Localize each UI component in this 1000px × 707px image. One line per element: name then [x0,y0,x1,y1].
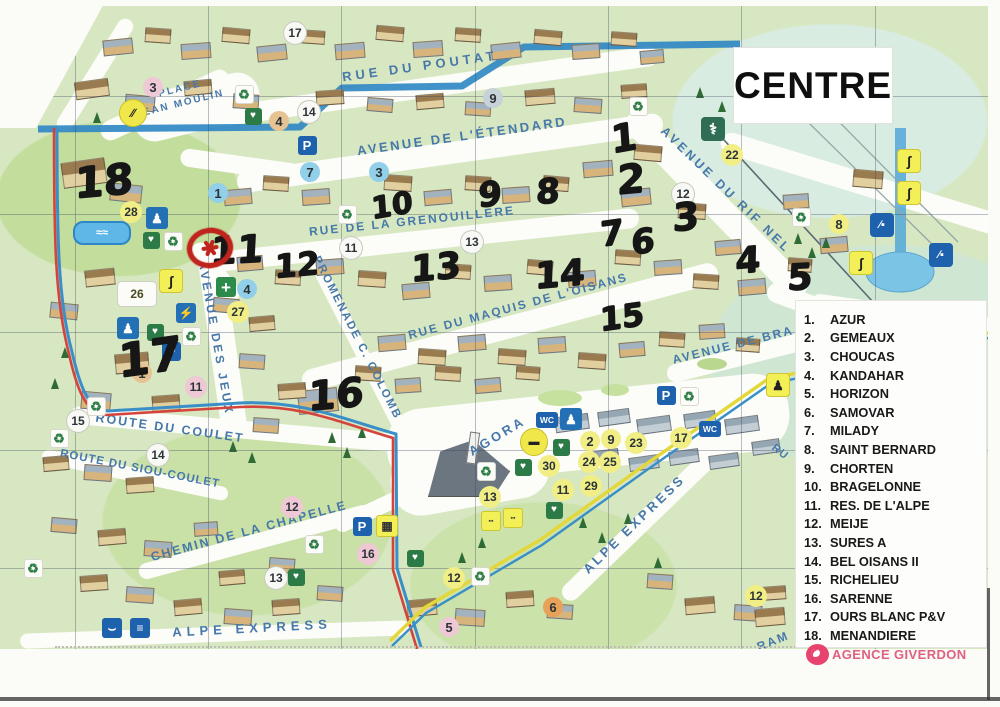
building [173,598,202,616]
grid-line-vertical [75,5,76,650]
building [693,273,720,290]
handwritten-number: 1 [609,114,638,163]
building [659,331,686,348]
chairlift-icon: ∕▪ [870,213,894,237]
map-title-box: CENTRE [734,48,892,123]
building [221,26,250,43]
sport-icon: ʃ [897,181,921,205]
legend-item-name: HORIZON [830,386,889,401]
wc-icon: WC [699,421,721,437]
legend-item-number: 8. [804,442,830,457]
building [301,188,330,206]
building [334,42,365,61]
first-aid-icon: ♥ [515,459,532,476]
building [435,365,462,382]
legend-item-number: 5. [804,386,830,401]
scan-edge-shadow-right [987,588,990,700]
map-badge: 9 [483,88,503,108]
building [574,97,603,114]
building [395,377,422,394]
legend-item-number: 1. [804,312,830,327]
building [375,24,404,41]
building [537,336,566,354]
doctor-icon: ⚕ [701,117,725,141]
map-badge: 9 [601,429,621,449]
map-badge: 24 [578,451,600,473]
building [253,417,280,434]
map-badge: 4 [237,279,257,299]
sport-icon: ʃ [159,269,183,293]
building [699,323,726,340]
gondola-icon: ▬ [520,428,548,456]
map-badge: 3 [143,77,163,97]
building [406,597,437,617]
legend-item-name: KANDAHAR [830,368,904,383]
building [180,42,211,60]
building [50,516,77,533]
tree [328,432,336,443]
legend-item-name: RICHELIEU [830,572,899,587]
map-badge: 11 [340,237,362,259]
building [277,382,306,400]
sport-icon: ʃ [897,149,921,173]
legend-item-name: MEIJE [830,516,868,531]
map-badge: 14 [298,101,320,123]
grid-line-vertical [475,5,476,650]
recycle-icon: ♻ [24,559,43,578]
legend-item: 9.CHORTEN [804,459,986,478]
picnic-icon: ♟ [560,408,582,430]
pharmacy-icon: + [216,277,236,297]
building [618,340,645,357]
map-badge: 22 [721,144,743,166]
building [783,193,810,210]
recycle-icon: ♻ [338,205,357,224]
parking-icon: P [353,517,372,536]
building [377,334,406,352]
legend-item: 18.MENANDIERE [804,626,986,645]
basket-icon: ▦ [376,515,398,537]
legend-item: 12.MEIJE [804,515,986,534]
soccer-icon: ♟ [766,373,790,397]
building [84,267,116,287]
map-badge: 11 [185,376,207,398]
building [647,573,674,590]
tree [718,101,726,112]
legend-item-name: SAMOVAR [830,405,894,420]
legend-item-number: 6. [804,405,830,420]
legend-item-number: 10. [804,479,830,494]
map-badge: 14 [147,444,169,466]
legend-item-name: BEL OISANS II [830,554,919,569]
legend-item-name: SURES A [830,535,886,550]
building [102,37,134,56]
legend-item-number: 9. [804,461,830,476]
recycle-icon: ♻ [477,462,496,481]
tree [93,112,101,123]
building [639,49,664,65]
building [239,353,266,370]
map-badge: 1 [208,183,228,203]
tree [458,552,466,563]
handwritten-number: 18 [74,154,133,208]
recycle-icon: ♻ [305,535,324,554]
building [628,454,660,472]
scanned-resort-map-page: ROU.RUE DU POUTATPLACEJEAN MOULINAVENUE … [0,0,1000,707]
legend-item-number: 3. [804,349,830,364]
recycle-icon: ♻ [471,567,490,586]
building [577,352,606,370]
building [454,607,485,626]
building [125,586,154,604]
map-badge: 6 [543,597,563,617]
handwritten-number: 14 [535,252,586,298]
legend-item-name: MILADY [830,423,879,438]
recycle-icon: ♻ [235,85,254,104]
recycle-icon: ♻ [50,429,69,448]
building [533,28,562,45]
building [611,31,638,47]
handwritten-number: 16 [308,369,364,420]
first-aid-icon: ♥ [245,108,262,125]
building [524,88,555,107]
recycle-icon: ♻ [87,397,106,416]
building [654,259,683,276]
legend-item-number: 16. [804,591,830,606]
map-badge: 13 [479,486,501,508]
parking-icon: P [298,136,317,155]
page-title: CENTRE [734,65,892,107]
shop-icon: ▪▪ [481,511,501,531]
building [708,452,740,470]
building [317,585,344,602]
handwritten-number: 9 [478,174,502,216]
sport-icon: ʃ [849,251,873,275]
building [423,188,452,205]
sled-icon: ⌣ [102,618,122,638]
map-badge: 11 [552,479,574,501]
map-badge: 23 [625,432,647,454]
legend-item-name: MENANDIERE [830,628,916,643]
tree [478,537,486,548]
building [151,394,180,412]
building [256,43,288,62]
legend-item: 2.GEMEAUX [804,329,986,348]
building [125,476,154,494]
handwritten-number: 2 [617,156,646,205]
recycle-icon: ♻ [629,97,648,116]
map-badge: 17 [284,22,306,44]
shop-icon: ▪▪ [503,508,523,528]
first-aid-icon: ♥ [288,569,305,586]
legend-item: 6.SAMOVAR [804,403,986,422]
map-badge: 5 [439,617,459,637]
building [248,314,275,331]
building [852,169,883,190]
building [572,43,601,60]
legend-item-number: 12. [804,516,830,531]
building [754,607,785,628]
ski-lift-icon: ≡ [130,618,150,638]
building [366,97,393,113]
recycle-icon: ♻ [164,232,183,251]
tree [654,557,662,568]
legend-item-number: 11. [804,498,830,513]
building [417,348,446,366]
agency-name: AGENCE GIVERDON [832,647,967,662]
legend-item-number: 18. [804,628,830,643]
building [474,376,501,393]
legend-item: 4.KANDAHAR [804,366,986,385]
handwritten-number: 4 [735,239,761,282]
handwritten-number: 6 [631,221,655,263]
tree [343,447,351,458]
map-badge: 12 [745,585,767,607]
handwritten-number: 15 [599,295,644,339]
map-badge: 13 [265,567,287,589]
building [218,568,245,585]
legend-item: 15.RICHELIEU [804,570,986,589]
building [263,175,290,192]
building [79,574,108,592]
scan-margin-top [0,0,1000,6]
legend-item-number: 14. [804,554,830,569]
legend-item: 14.BEL OISANS II [804,552,986,571]
map-badge: 3 [369,162,389,182]
building [271,598,300,616]
building [97,528,126,546]
parking-icon: P [657,386,676,405]
tree [822,237,830,248]
recycle-icon: ♻ [792,208,811,227]
tree [61,347,69,358]
recycle-icon: ♻ [680,387,699,406]
handwritten-number: 5 [786,257,813,299]
legend-item-name: OURS BLANC P&V [830,609,945,624]
building [455,27,482,43]
handwritten-number: 10 [370,185,414,227]
handwritten-number: 17 [117,325,182,388]
building [505,590,534,608]
building [497,348,526,366]
legend-item-name: CHOUCAS [830,349,895,364]
tree [358,427,366,438]
legend-item-name: GEMEAUX [830,330,895,345]
ev-plug-icon: ⚡ [176,303,196,323]
map-badge: 8 [829,214,849,234]
building [684,595,715,615]
building [483,274,512,292]
map-badge: 13 [461,231,483,253]
legend-item-name: RES. DE L'ALPE [830,498,930,513]
building [457,334,486,352]
tree [579,517,587,528]
map-badge: 12 [443,567,465,589]
legend-item-number: 7. [804,423,830,438]
legend-item-number: 13. [804,535,830,550]
legend-item: 1.AZUR [804,310,986,329]
first-aid-icon: ♥ [553,439,570,456]
grid-line-vertical [341,5,342,650]
map-badge: 2 [580,431,600,451]
tree [248,452,256,463]
building [501,186,530,204]
legend-item: 5.HORIZON [804,384,986,403]
legend-item-name: AZUR [830,312,866,327]
map-badge: 29 [580,475,602,497]
map-badge: 25 [599,451,621,473]
map-badge: 17 [670,427,692,449]
legend-panel: 1.AZUR2.GEMEAUX3.CHOUCAS4.KANDAHAR5.HORI… [796,301,986,647]
legend-item-number: 15. [804,572,830,587]
map-badge: 7 [300,162,320,182]
map-badge: 28 [120,201,142,223]
legend-list: 1.AZUR2.GEMEAUX3.CHOUCAS4.KANDAHAR5.HORI… [804,310,986,645]
map-badge: 26 [118,282,156,306]
legend-item-name: SAINT BERNARD [830,442,936,457]
tree [51,378,59,389]
legend-item-number: 17. [804,609,830,624]
pool-icon: ≈≈ [73,221,131,245]
legend-item: 16.SARENNE [804,589,986,608]
building [145,27,172,44]
legend-item-name: CHORTEN [830,461,893,476]
handwritten-number: 7 [600,212,625,255]
legend-item: 7.MILADY [804,422,986,441]
agency-signature: AGENCE GIVERDON [806,644,967,665]
map-badge: 15 [67,410,89,432]
map-badge: 30 [538,455,560,477]
map-badge: 12 [281,496,303,518]
building [415,92,444,109]
first-aid-icon: ♥ [546,502,563,519]
first-aid-icon: ♥ [407,550,424,567]
legend-item: 17.OURS BLANC P&V [804,608,986,627]
map-badge: 4 [269,111,289,131]
legend-item: 10.BRAGELONNE [804,477,986,496]
legend-item-name: BRAGELONNE [830,479,921,494]
scan-edge-shadow-bottom [0,697,1000,701]
chairlift-icon: ∕▪ [929,243,953,267]
legend-item: 13.SURES A [804,533,986,552]
legend-item: 11.RES. DE L'ALPE [804,496,986,515]
scan-edge-speckle [55,646,855,648]
building [357,270,386,288]
wc-icon: WC [536,412,558,428]
handwritten-number: 12 [274,244,319,286]
map-badge: 27 [227,301,249,323]
tree [794,233,802,244]
legend-item: 8.SAINT BERNARD [804,440,986,459]
building [516,365,541,381]
legend-item: 3.CHOUCAS [804,347,986,366]
handwritten-number: 13 [411,245,462,291]
legend-item-name: SARENNE [830,591,893,606]
handwritten-number: 8 [535,171,561,212]
agency-logo-icon [806,644,829,665]
baby-change-icon: ♟ [146,207,168,229]
first-aid-icon: ♥ [143,232,160,249]
handwritten-number: 3 [672,194,699,241]
map-badge: 16 [357,543,379,565]
legend-item-number: 4. [804,368,830,383]
legend-item-number: 2. [804,330,830,345]
recycle-icon: ♻ [182,327,201,346]
ski-school-icon: ∕∕ [119,99,147,127]
